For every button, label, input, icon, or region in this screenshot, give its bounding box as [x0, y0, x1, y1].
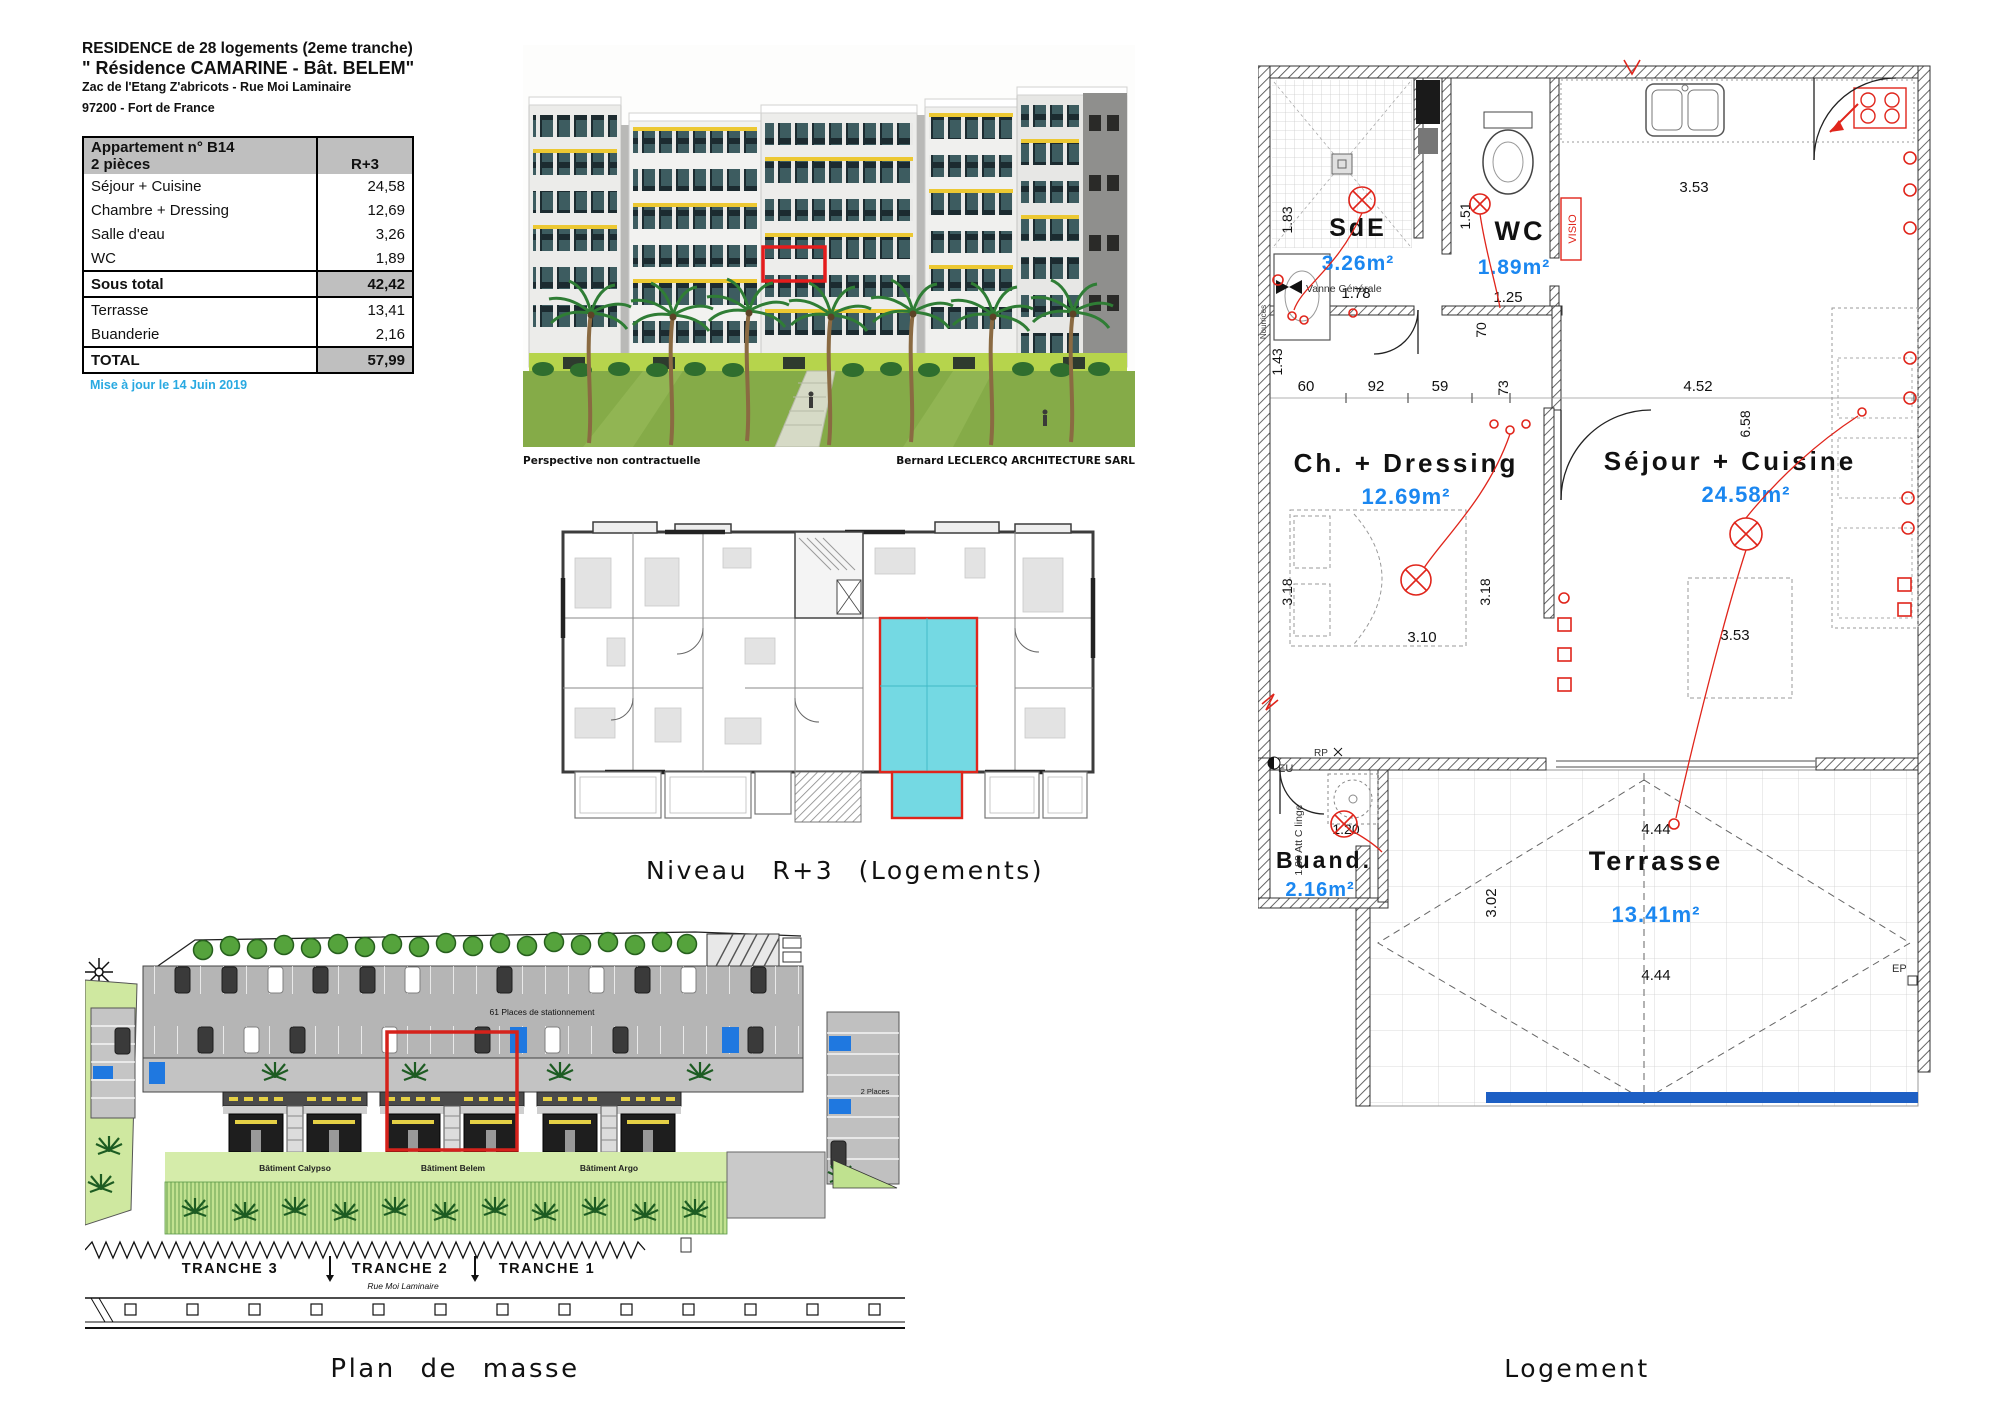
handicap-stall: [829, 1036, 851, 1051]
svg-text:59: 59: [1432, 378, 1449, 395]
right-parking: 2 Places: [827, 1012, 899, 1188]
left-parking: [91, 1008, 135, 1118]
terrasse-room: Terrasse 13.41m² 4.44 4.44 3.02 EP: [1356, 770, 1918, 1106]
places-label: 2 Places: [861, 1087, 890, 1096]
table-row: Salle d'eau 3,26: [83, 222, 413, 246]
svg-text:3.18: 3.18: [1477, 578, 1493, 605]
table-header-row: Appartement n° B14 2 pièces R+3: [83, 137, 413, 174]
building-mid-right: [925, 99, 1017, 367]
svg-text:VISIO: VISIO: [1567, 214, 1579, 244]
wc-label: WC: [1495, 216, 1546, 246]
site-plan: 61 Places de stationnement: [85, 920, 905, 1340]
building-label-belem: Bâtiment Belem: [421, 1163, 486, 1173]
table-row: WC 1,89: [83, 246, 413, 271]
total-row: TOTAL 57,99: [83, 347, 413, 373]
apartment-caption: Logement: [1277, 1354, 1877, 1383]
apartment-area-table: Appartement n° B14 2 pièces R+3 Séjour +…: [82, 136, 414, 374]
svg-text:4.44: 4.44: [1641, 821, 1670, 838]
update-note: Mise à jour le 14 Juin 2019: [90, 378, 247, 392]
zigzag-line: [85, 1242, 645, 1258]
building-mid-left: [629, 113, 761, 367]
stair-core: [795, 532, 863, 618]
terrasse-label: Terrasse: [1589, 846, 1724, 876]
apartment-plan: Terrasse 13.41m² 4.44 4.44 3.02 EP: [1258, 58, 1938, 1128]
sejour-label: Séjour + Cuisine: [1604, 446, 1856, 476]
ceiling-light: [1470, 194, 1490, 214]
street-label: Rue Moi Laminaire: [367, 1281, 439, 1291]
floor-plan-r3: [545, 518, 1110, 848]
table-row: Séjour + Cuisine 24,58: [83, 174, 413, 198]
perspective-caption: Perspective non contractuelle: [523, 455, 701, 467]
architect-credit: Bernard LECLERCQ ARCHITECTURE SARL: [896, 455, 1135, 467]
sejour-area: 24.58m²: [1702, 482, 1791, 507]
vanne-label: Vanne Générale: [1306, 283, 1382, 295]
site-plan-caption: Plan de masse: [155, 1354, 755, 1384]
table-row: Terrasse 13,41: [83, 297, 413, 322]
terrasse-area: 13.41m²: [1612, 902, 1701, 927]
tree-row: [194, 933, 697, 960]
buand-label: Buand.: [1276, 847, 1372, 873]
residence-city: 97200 - Fort de France: [82, 101, 522, 116]
svg-text:1.83: 1.83: [1279, 206, 1295, 233]
buand-area: 2.16m²: [1285, 879, 1354, 901]
visio-box: VISIO: [1561, 198, 1581, 260]
sde-room: SdE 3.26m² 1.78 1.83 1.43 Nourrices Vann…: [1259, 80, 1412, 376]
residence-address: Zac de l'Etang Z'abricots - Rue Moi Lami…: [82, 80, 522, 95]
svg-text:3.10: 3.10: [1407, 629, 1436, 646]
washbasin-unit: [1418, 128, 1438, 154]
svg-text:92: 92: [1368, 378, 1385, 395]
plan-sheet: RESIDENCE de 28 logements (2eme tranche)…: [0, 0, 2000, 1414]
ep-label: EP: [1892, 963, 1907, 975]
sde-area: 3.26m²: [1322, 252, 1395, 275]
svg-text:1.80 Att C linge: 1.80 Att C linge: [1293, 804, 1305, 875]
subtotal-row: Sous total 42,42: [83, 271, 413, 297]
title-block: RESIDENCE de 28 logements (2eme tranche)…: [82, 40, 522, 116]
apartment-b14-highlight: [880, 618, 977, 818]
rp-label: RP: [1314, 748, 1328, 759]
building-label-argo: Bâtiment Argo: [580, 1163, 638, 1173]
ceiling-light: [1730, 518, 1762, 550]
dimension-line: 60 92 59 4.52 73 70 6.58: [1270, 322, 1914, 438]
tranche-3-label: TRANCHE 3: [182, 1261, 278, 1277]
residence-title: RESIDENCE de 28 logements (2eme tranche): [82, 40, 522, 58]
entrance-steps: [795, 772, 861, 822]
table-row: Chambre + Dressing 12,69: [83, 198, 413, 222]
svg-text:3.53: 3.53: [1720, 627, 1749, 644]
svg-text:1.43: 1.43: [1269, 348, 1285, 375]
parking-lot: 61 Places de stationnement: [143, 966, 803, 1058]
road: [85, 1298, 905, 1328]
handicap-stall: [149, 1062, 165, 1084]
table-row: Buanderie 2,16: [83, 322, 413, 347]
chambre-label: Ch. + Dressing: [1294, 448, 1519, 478]
gate: [681, 1238, 691, 1252]
handicap-stall: [722, 1027, 739, 1053]
svg-text:73: 73: [1495, 380, 1511, 396]
tranche-2-label: TRANCHE 2: [352, 1261, 448, 1277]
handicap-stall: [93, 1066, 113, 1079]
chambre-area: 12.69m²: [1362, 484, 1451, 509]
parking-count-label: 61 Places de stationnement: [490, 1007, 596, 1017]
apartment-number: Appartement n° B14: [91, 139, 309, 156]
nourrices-label: Nourrices: [1259, 305, 1268, 339]
svg-text:3.02: 3.02: [1483, 888, 1500, 917]
bay-window: [1556, 761, 1816, 767]
tranche-1-label: TRANCHE 1: [499, 1261, 595, 1277]
floor-column-header: R+3: [317, 137, 413, 174]
building-left: [529, 97, 621, 367]
svg-text:6.58: 6.58: [1737, 410, 1753, 437]
apartment-b14-terrace: [892, 772, 962, 818]
ceiling-light: [1401, 565, 1431, 595]
svg-text:70: 70: [1473, 322, 1489, 338]
perspective-render: Perspective non contractuelle Bernard LE…: [523, 45, 1135, 467]
sde-label: SdE: [1329, 214, 1387, 242]
kitchen-counter: 3.53: [1561, 80, 1918, 628]
svg-text:3.53: 3.53: [1679, 179, 1708, 196]
svg-text:3.18: 3.18: [1279, 578, 1295, 605]
handicap-stall: [829, 1099, 851, 1114]
svg-text:60: 60: [1298, 378, 1315, 395]
terrace-edge-water: [1486, 1092, 1918, 1103]
svg-text:4.52: 4.52: [1683, 378, 1712, 395]
duct: [1416, 80, 1440, 124]
cooktop: [1854, 88, 1906, 128]
sejour-room: Séjour + Cuisine 24.58m² 3.53: [1604, 446, 1856, 698]
floor-plan-caption: Niveau R+3 (Logements): [545, 856, 1145, 885]
residence-name: " Résidence CAMARINE - Bât. BELEM": [82, 58, 522, 79]
chambre-room: Ch. + Dressing 12.69m² 3.18 3.18 3.10: [1279, 448, 1518, 646]
building-mid: [761, 105, 917, 367]
apartment-type: 2 pièces: [91, 156, 309, 173]
svg-text:4.44: 4.44: [1641, 967, 1670, 984]
perspective-image: [523, 45, 1135, 447]
plaza: [727, 1152, 825, 1218]
building-label-calypso: Bâtiment Calypso: [259, 1163, 331, 1173]
